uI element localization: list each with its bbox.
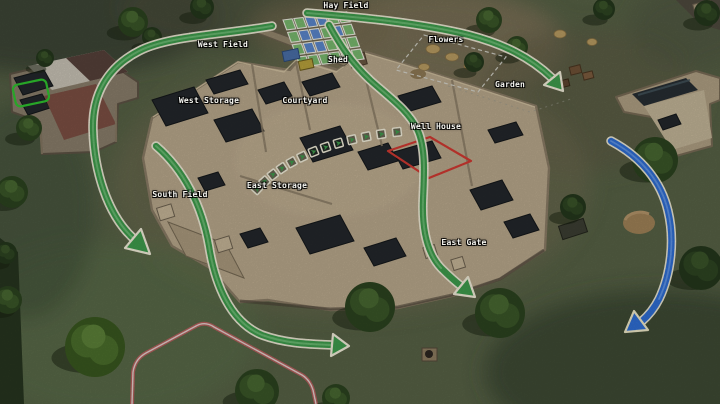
map-label-east-storage[interactable]: East Storage xyxy=(247,181,307,190)
map-viewport[interactable]: Hay Field West Field Flowers Shed Garden… xyxy=(0,0,720,404)
map-label-east-gate[interactable]: East Gate xyxy=(441,238,486,247)
map-label-flowers[interactable]: Flowers xyxy=(428,35,463,44)
map-label-west-storage[interactable]: West Storage xyxy=(179,96,239,105)
map-label-garden[interactable]: Garden xyxy=(495,80,525,89)
map-label-south-field[interactable]: South Field xyxy=(152,190,207,199)
map-label-courtyard[interactable]: Courtyard xyxy=(282,96,327,105)
scene-svg xyxy=(0,0,720,404)
map-label-hay-field[interactable]: Hay Field xyxy=(323,1,368,10)
map-label-west-field[interactable]: West Field xyxy=(198,40,248,49)
map-label-shed[interactable]: Shed xyxy=(328,55,348,64)
grain-overlay xyxy=(0,0,720,404)
map-label-well-house[interactable]: Well House xyxy=(411,122,461,131)
